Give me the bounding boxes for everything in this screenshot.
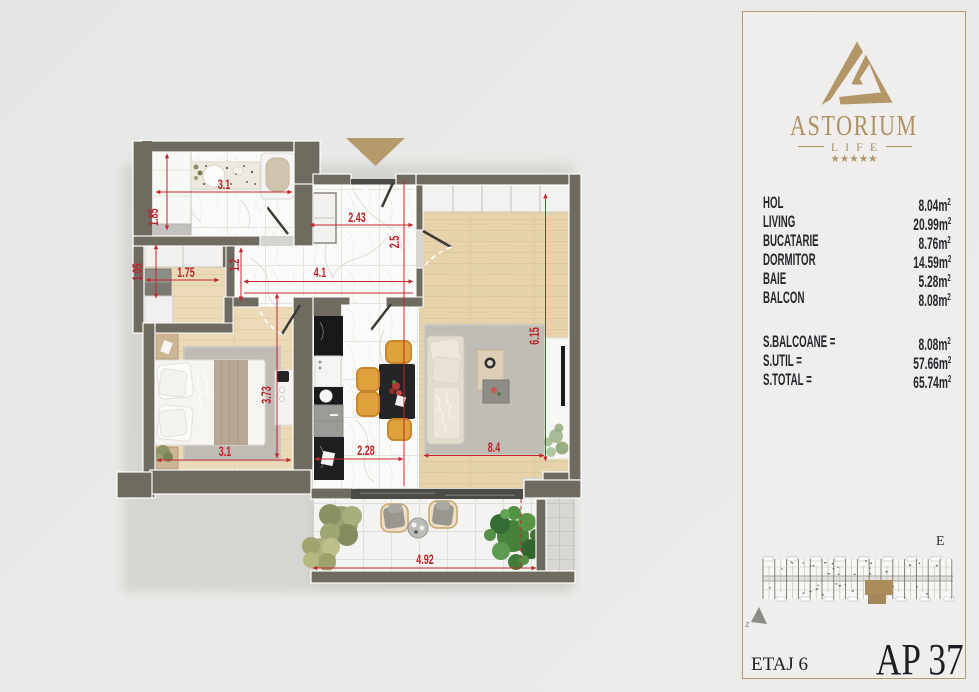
svg-text:4.92: 4.92	[416, 552, 434, 567]
svg-text:2.28: 2.28	[357, 443, 375, 458]
svg-text:4.1: 4.1	[314, 265, 327, 280]
svg-text:1.05: 1.05	[130, 263, 145, 281]
svg-text:2.43: 2.43	[348, 210, 366, 225]
svg-text:1.2: 1.2	[227, 258, 242, 271]
svg-text:3.73: 3.73	[259, 386, 274, 404]
svg-text:3.1: 3.1	[218, 177, 231, 192]
svg-text:3.1: 3.1	[219, 444, 232, 459]
svg-text:6.15: 6.15	[527, 327, 542, 345]
svg-text:1.85: 1.85	[146, 208, 161, 226]
svg-text:z: z	[745, 619, 750, 629]
svg-text:2.5: 2.5	[387, 235, 402, 248]
svg-text:8.4: 8.4	[488, 440, 501, 455]
svg-text:1.75: 1.75	[177, 265, 195, 280]
